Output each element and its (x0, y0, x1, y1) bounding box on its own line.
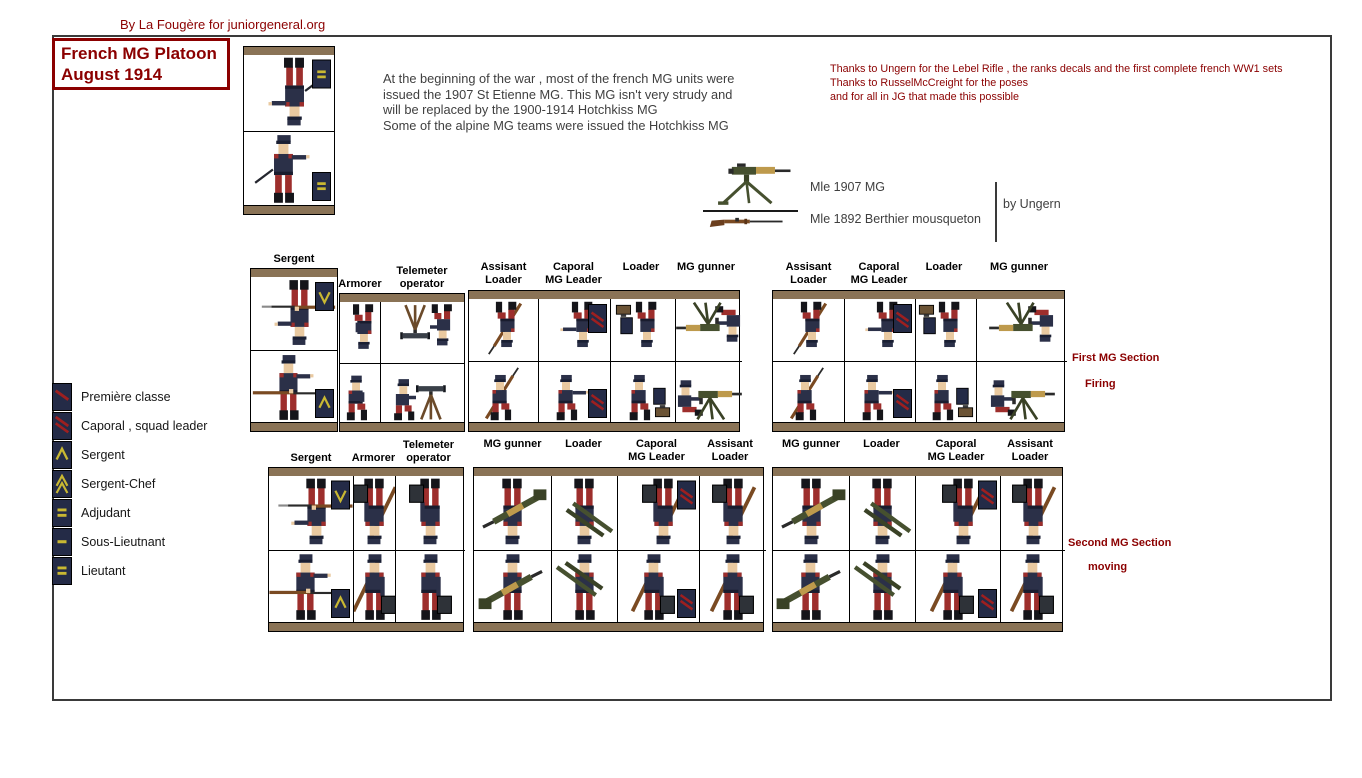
armorer-figure (340, 366, 381, 422)
mg-gunner-figure (676, 300, 742, 357)
half-content (539, 299, 610, 361)
half-content (916, 476, 1000, 550)
figure-cell-armorer (340, 302, 381, 423)
cells-row (339, 302, 465, 423)
inverted-half (916, 476, 1000, 551)
upright-half (474, 550, 551, 624)
rank-patch-chevron1 (315, 389, 334, 418)
assistant-loader-figure (469, 300, 539, 357)
upright-half (469, 361, 538, 423)
mg-gunner-figure (676, 365, 742, 422)
figure-cell-mg-gunner (977, 299, 1067, 423)
half-content (269, 476, 353, 550)
inverted-half (618, 476, 699, 551)
inverted-half (977, 299, 1067, 362)
insignia-icon (53, 384, 71, 410)
telemeter-operator-figure (388, 303, 458, 359)
insignia-icon (589, 390, 606, 417)
figure-cell-caporal-mg-leader (539, 299, 611, 423)
thanks-line: Thanks to Ungern for the Lebel Rifle , t… (830, 62, 1282, 76)
insignia-icon (589, 305, 606, 332)
insignia-icon (53, 500, 71, 526)
half-content (539, 361, 610, 423)
half-content (552, 550, 617, 624)
loader-figure (611, 365, 676, 422)
assistant-loader-figure (469, 365, 539, 422)
rank-patch-bar2 (312, 60, 331, 89)
insignia-icon (53, 471, 71, 497)
half-content (474, 476, 551, 550)
half-content (845, 299, 915, 361)
half-content (244, 55, 334, 131)
loader-figure (850, 553, 916, 622)
inverted-half (474, 476, 551, 551)
figure-cell-mg-gunner (773, 476, 850, 623)
half-content (618, 550, 699, 624)
intro-line: issued the 1907 St Etienne MG. This MG i… (383, 87, 734, 103)
upright-half (676, 361, 742, 423)
half-content (977, 361, 1067, 423)
cells-row (772, 299, 1065, 423)
insignia-icon (53, 529, 71, 555)
half-content (269, 550, 353, 624)
figure-cell-label: Assisant Loader (983, 438, 1077, 465)
legend-label: Première classe (81, 390, 171, 404)
half-content (1001, 550, 1065, 624)
mle-1892-carbine-icon (708, 214, 788, 229)
cells-row (468, 299, 740, 423)
half-content (1001, 476, 1065, 550)
thanks-line: and for all in JG that made this possibl… (830, 90, 1282, 104)
divider-line (995, 182, 997, 242)
half-content (916, 550, 1000, 624)
rank-patch-stripe2 (978, 589, 997, 618)
inverted-half (611, 299, 675, 362)
half-content (773, 299, 844, 361)
author-credit: By La Fougère for juniorgeneral.org (120, 17, 325, 32)
upright-half (244, 131, 334, 207)
insignia-icon (313, 173, 330, 200)
mg-label: Mle 1907 MG (810, 180, 885, 194)
mg-gunner-figure (474, 553, 552, 622)
intro-paragraph: At the beginning of the war , most of th… (383, 71, 734, 133)
figure-cell-telemeter-operator (381, 302, 465, 423)
rank-legend: Première classeCaporal , squad leaderSer… (52, 383, 207, 586)
inverted-half (340, 302, 380, 364)
insignia-icon (53, 413, 71, 439)
insignia-icon (332, 590, 349, 617)
half-content (340, 363, 380, 424)
intro-line: At the beginning of the war , most of th… (383, 71, 734, 87)
rank-insignia-stripe2 (52, 412, 72, 440)
figure-cell-caporal-mg-leader (618, 476, 700, 623)
intro-line: Some of the alpine MG teams were issued … (383, 118, 734, 134)
inverted-half (539, 299, 610, 362)
rank-insignia-chevron2 (52, 470, 72, 498)
inverted-half (700, 476, 766, 551)
insignia-icon (678, 482, 695, 509)
figure-cell-assistant-loader (1001, 476, 1065, 623)
figure-group-hq-first: Sergent (250, 268, 338, 432)
half-content (396, 550, 465, 624)
inverted-half (845, 299, 915, 362)
rank-patch-bar2 (312, 172, 331, 201)
half-content (977, 299, 1067, 361)
assistant-loader-figure (1001, 477, 1065, 546)
upright-half (340, 363, 380, 424)
figure-group-hq-first-b: ArmorerTelemeter operator (339, 293, 465, 432)
half-content (469, 299, 538, 361)
upright-half (354, 550, 395, 624)
upright-half (773, 550, 849, 624)
insignia-icon (979, 590, 996, 617)
rank-patch-stripe2 (893, 304, 912, 333)
insignia-icon (678, 590, 695, 617)
inverted-half (1001, 476, 1065, 551)
figure-cell-label: MG gunner (658, 261, 754, 288)
rank-insignia-bar1 (52, 528, 72, 556)
figure-cell-telemeter-operator (396, 476, 465, 623)
figure-group-squad-first-a: Assisant LoaderCaporal MG LeaderLoaderMG… (468, 290, 740, 432)
half-content (354, 550, 395, 624)
figure-cell-caporal-mg-leader (845, 299, 916, 423)
inverted-half (244, 55, 334, 132)
figure-cell-loader (552, 476, 618, 623)
second-section-label: Second MG Section (1068, 537, 1171, 549)
half-content (676, 361, 742, 423)
insignia-icon (894, 305, 911, 332)
fold-bar (339, 422, 465, 432)
figure-cell-mg-gunner (474, 476, 552, 623)
insignia-icon (979, 482, 996, 509)
armorer-figure (354, 477, 396, 546)
rank-patch-stripe2 (677, 589, 696, 618)
figure-cell-loader (611, 299, 676, 423)
half-content (700, 476, 766, 550)
inverted-half (269, 476, 353, 551)
rank-insignia-chevron1 (52, 441, 72, 469)
mg-gunner-figure (773, 553, 850, 622)
inverted-half (552, 476, 617, 551)
figure-cell-loader (850, 476, 916, 623)
upright-half (611, 361, 675, 423)
rank-patch-stripe2 (588, 304, 607, 333)
rank-patch-stripe2 (677, 481, 696, 510)
rank-patch-stripe2 (978, 481, 997, 510)
figure-group-squad-second-a: MG gunnerLoaderCaporal MG LeaderAssisant… (473, 467, 764, 632)
loader-figure (552, 477, 618, 546)
fold-bar (772, 422, 1065, 432)
figure-cell-label: MG gunner (959, 261, 1079, 288)
loader-figure (850, 477, 916, 546)
legend-item: Sous-Lieutnant (52, 528, 207, 556)
upright-half (700, 550, 766, 624)
half-content (469, 361, 538, 423)
half-content (773, 550, 849, 624)
half-content (845, 361, 915, 423)
figure-cell-sergent (251, 277, 337, 423)
first-section-label: First MG Section (1072, 352, 1159, 364)
cells-row (243, 55, 335, 206)
half-content (850, 550, 915, 624)
half-content (611, 361, 675, 423)
upright-half (773, 361, 844, 423)
half-content (676, 299, 742, 361)
upright-half (845, 361, 915, 423)
legend-label: Caporal , squad leader (81, 419, 207, 433)
legend-item: Caporal , squad leader (52, 412, 207, 440)
insignia-icon (53, 558, 71, 584)
legend-item: Sergent-Chef (52, 470, 207, 498)
carbine-label: Mle 1892 Berthier mousqueton (810, 212, 981, 226)
half-content (618, 476, 699, 550)
upright-half (552, 550, 617, 624)
telemeter-operator-figure (396, 553, 465, 622)
upright-half (396, 550, 465, 624)
figure-cell-loader (916, 299, 977, 423)
fold-bar (772, 622, 1063, 632)
half-content (381, 302, 465, 363)
half-content (474, 550, 551, 624)
upright-half (539, 361, 610, 423)
inverted-half (773, 476, 849, 551)
rank-insignia-stripe1 (52, 383, 72, 411)
upright-half (269, 550, 353, 624)
legend-label: Sergent-Chef (81, 477, 155, 491)
half-content (916, 299, 976, 361)
rank-patch-chevron1 (331, 589, 350, 618)
figure-cell-caporal-mg-leader (916, 476, 1001, 623)
fold-bar (473, 622, 764, 632)
fold-bar (468, 422, 740, 432)
legend-label: Sergent (81, 448, 125, 462)
title-line-1: French MG Platoon (61, 43, 227, 64)
assistant-loader-figure (1001, 553, 1065, 622)
upright-half (977, 361, 1067, 423)
insignia-icon (53, 442, 71, 468)
upright-half (381, 363, 465, 424)
upright-half (618, 550, 699, 624)
insignia-icon (313, 61, 330, 88)
armorer-figure (354, 553, 396, 622)
assistant-loader-figure (700, 477, 766, 546)
inverted-half (676, 299, 742, 362)
telemeter-operator-figure (396, 477, 465, 546)
thanks-text: Thanks to Ungern for the Lebel Rifle , t… (830, 62, 1282, 104)
figure-group-squad-first-b: Assisant LoaderCaporal MG LeaderLoaderMG… (772, 290, 1065, 432)
upright-half (916, 550, 1000, 624)
upright-half (916, 361, 976, 423)
half-content (354, 476, 395, 550)
legend-label: Lieutant (81, 564, 125, 578)
thanks-line: Thanks to RusselMcCreight for the poses (830, 76, 1282, 90)
inverted-half (354, 476, 395, 551)
half-content (850, 476, 915, 550)
mg-gunner-figure (987, 365, 1058, 422)
figure-cell-assistant-loader (773, 299, 845, 423)
inverted-half (850, 476, 915, 551)
loader-figure (916, 365, 977, 422)
legend-label: Sous-Lieutnant (81, 535, 165, 549)
half-content (251, 350, 337, 423)
mle-1907-mg-icon (712, 160, 800, 210)
mg-gunner-figure (773, 477, 850, 546)
half-content (916, 361, 976, 423)
legend-item: Adjudant (52, 499, 207, 527)
half-content (244, 131, 334, 207)
insignia-icon (316, 390, 333, 417)
mg-gunner-figure (474, 477, 552, 546)
legend-item: Sergent (52, 441, 207, 469)
figure-group-hq-second: SergentArmorerTelemeter operator (268, 467, 464, 632)
inverted-half (396, 476, 465, 551)
mg-gunner-figure (987, 300, 1058, 357)
cells-row (473, 476, 764, 623)
telemeter-operator-figure (388, 366, 458, 422)
inverted-half (916, 299, 976, 362)
fold-bar (243, 205, 335, 215)
loader-figure (916, 300, 977, 357)
half-content (773, 361, 844, 423)
half-content (773, 476, 849, 550)
loader-figure (611, 300, 676, 357)
figure-cell-lieutenant (244, 55, 334, 206)
weapons-credit: by Ungern (1003, 197, 1061, 211)
figure-cell-label: Sergent (236, 239, 352, 266)
title-line-2: August 1914 (61, 64, 227, 85)
cells-row (268, 476, 464, 623)
cells-row (250, 277, 338, 423)
assistant-loader-figure (700, 553, 766, 622)
half-content (340, 302, 380, 363)
fold-bar (268, 622, 464, 632)
half-content (381, 363, 465, 424)
rank-patch-stripe2 (893, 389, 912, 418)
sprite-sheet: By La Fougère for juniorgeneral.org Fren… (0, 0, 1362, 778)
legend-item: Première classe (52, 383, 207, 411)
first-section-pose-label: Firing (1085, 378, 1116, 390)
fold-bar (250, 422, 338, 432)
upright-half (251, 350, 337, 423)
second-section-pose-label: moving (1088, 561, 1127, 573)
rank-patch-stripe2 (588, 389, 607, 418)
title-box: French MG Platoon August 1914 (52, 38, 230, 90)
figure-cell-mg-gunner (676, 299, 742, 423)
assistant-loader-figure (773, 300, 844, 357)
assistant-loader-figure (773, 365, 844, 422)
figure-group-squad-second-b: MG gunnerLoaderCaporal MG LeaderAssisant… (772, 467, 1063, 632)
cells-row (772, 476, 1063, 623)
legend-item: Lieutant (52, 557, 207, 585)
insignia-icon (894, 390, 911, 417)
loader-figure (552, 553, 618, 622)
half-content (552, 476, 617, 550)
figure-cell-assistant-loader (700, 476, 766, 623)
intro-line: will be replaced by the 1900-1914 Hotchk… (383, 102, 734, 118)
figure-group-officer-panel (243, 46, 335, 215)
half-content (611, 299, 675, 361)
insignia-icon (332, 482, 349, 509)
legend-label: Adjudant (81, 506, 130, 520)
rank-patch-chevron1 (331, 481, 350, 510)
inverted-half (469, 299, 538, 362)
figure-cell-armorer (354, 476, 396, 623)
ground-line (703, 210, 798, 212)
figure-cell-assistant-loader (469, 299, 539, 423)
half-content (700, 550, 766, 624)
inverted-half (773, 299, 844, 362)
half-content (396, 476, 465, 550)
armorer-figure (340, 303, 381, 359)
upright-half (850, 550, 915, 624)
rank-insignia-bar2 (52, 499, 72, 527)
rank-insignia-bar2 (52, 557, 72, 585)
figure-cell-sergent (269, 476, 354, 623)
inverted-half (381, 302, 465, 364)
upright-half (1001, 550, 1065, 624)
